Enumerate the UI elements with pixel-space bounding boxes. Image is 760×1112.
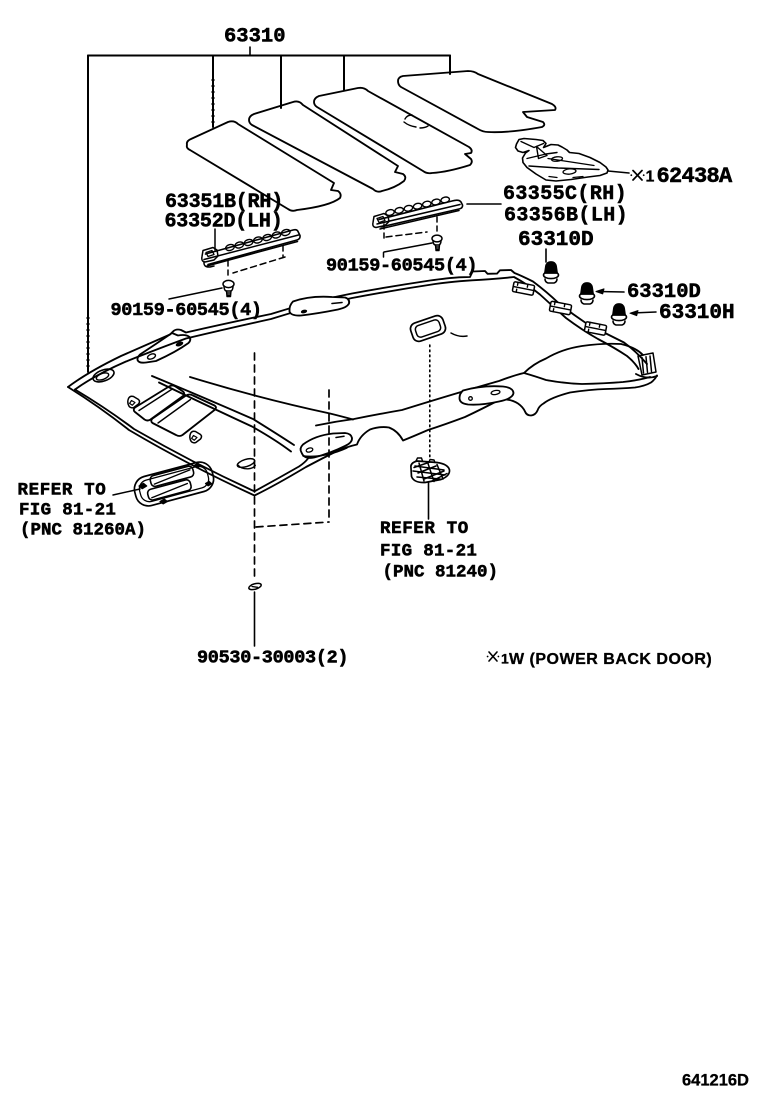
svg-text:(PNC 81240): (PNC 81240) <box>383 563 499 583</box>
svg-text:FIG 81-21: FIG 81-21 <box>380 542 477 562</box>
svg-text:63355C(RH): 63355C(RH) <box>503 183 627 206</box>
svg-text:REFER TO: REFER TO <box>380 519 469 539</box>
svg-text:W (POWER BACK DOOR): W (POWER BACK DOOR) <box>509 651 712 668</box>
svg-text:63310H: 63310H <box>659 302 735 325</box>
svg-text:(PNC 81260A): (PNC 81260A) <box>20 521 146 541</box>
svg-text:REFER TO: REFER TO <box>18 481 107 501</box>
svg-text:63310: 63310 <box>224 26 286 49</box>
svg-text:90159-60545(4): 90159-60545(4) <box>326 256 477 277</box>
svg-text:63310D: 63310D <box>518 229 594 252</box>
svg-text:63310D: 63310D <box>627 281 701 304</box>
svg-text:63352D(LH): 63352D(LH) <box>165 211 283 234</box>
svg-text:641216D: 641216D <box>682 1072 749 1090</box>
svg-text:1: 1 <box>501 651 509 667</box>
svg-text:90530-30003(2): 90530-30003(2) <box>197 648 348 669</box>
svg-text:63356B(LH): 63356B(LH) <box>504 205 628 228</box>
svg-text:1: 1 <box>646 169 655 186</box>
svg-text:90159-60545(4): 90159-60545(4) <box>111 300 262 321</box>
svg-text:FIG 81-21: FIG 81-21 <box>19 501 116 521</box>
svg-text:62438A: 62438A <box>657 164 734 189</box>
